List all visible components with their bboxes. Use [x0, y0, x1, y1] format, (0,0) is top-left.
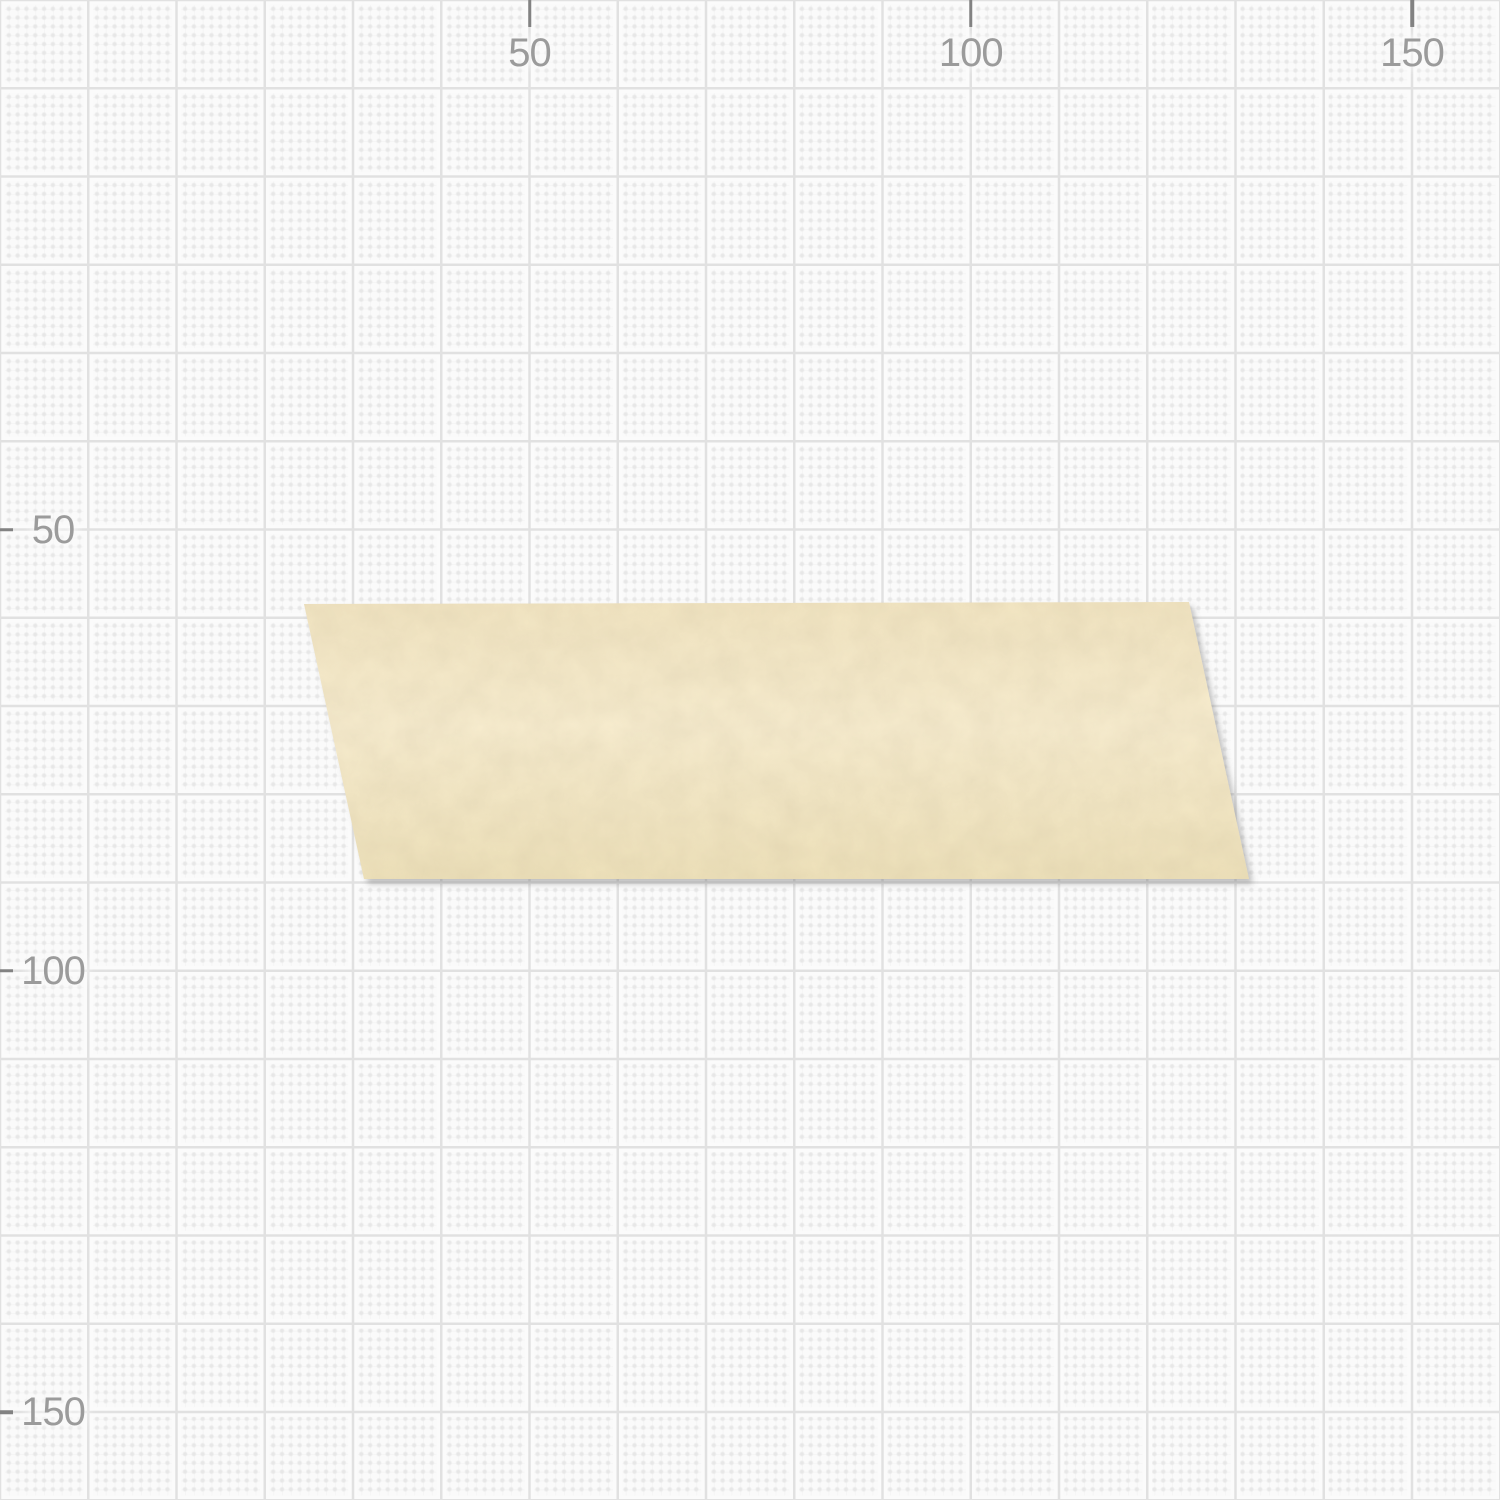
- top-ruler-label-100: 100: [939, 31, 1003, 75]
- tape-object-layer: [0, 0, 1500, 1500]
- top-ruler-tick-100: [969, 0, 973, 27]
- top-ruler-label-50: 50: [508, 31, 551, 75]
- left-ruler-label-150: 150: [8, 1390, 98, 1434]
- left-ruler-label-50: 50: [8, 508, 98, 552]
- top-ruler-label-150: 150: [1380, 31, 1444, 75]
- left-ruler-label-100: 100: [8, 949, 98, 993]
- top-ruler-tick-50: [528, 0, 532, 27]
- tape-strip-texture: [304, 602, 1249, 879]
- canvas-viewport[interactable]: 50 100 150 50 100 150: [0, 0, 1500, 1500]
- top-ruler-tick-150: [1410, 0, 1414, 27]
